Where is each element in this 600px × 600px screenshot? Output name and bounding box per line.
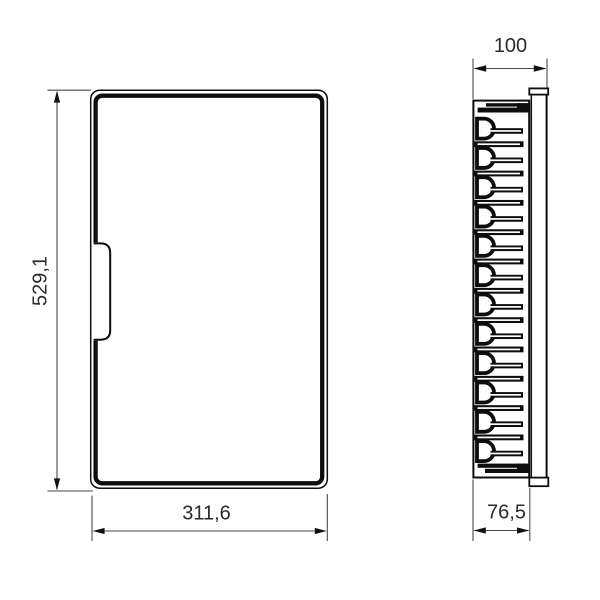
fin-separator-stripe (478, 173, 521, 175)
fin-stripe (491, 189, 522, 191)
fin-separator-stripe (478, 261, 521, 263)
fin-stripe (491, 218, 522, 220)
fin-stripe (491, 247, 522, 249)
dim-label-height: 529,1 (30, 256, 52, 306)
fin-stripe (491, 394, 522, 396)
fin-stripe (491, 365, 522, 367)
fin-stripe (491, 130, 522, 132)
arrowhead-left-icon (474, 65, 487, 71)
fin-stripe (491, 159, 522, 161)
fin-separator-stripe (478, 437, 521, 439)
arrowhead-right-icon (517, 527, 529, 533)
fin-separator-stripe (478, 319, 521, 321)
arrowhead-right-icon (315, 528, 327, 534)
fin-stripe (491, 335, 522, 337)
side-bottom-band (478, 464, 530, 473)
fin-separator-stripe (478, 143, 521, 145)
fin-separator-stripe (478, 407, 521, 409)
mount-plate (529, 88, 548, 486)
drawing-canvas: 529,1 311,6 100 76,5 (0, 0, 600, 600)
mount-plate-bottom-foot (529, 478, 548, 487)
fin-separator-stripe (478, 290, 521, 292)
dim-label-depth-total: 100 (494, 35, 527, 57)
side-view (473, 88, 548, 486)
dim-height: 529,1 (30, 90, 94, 491)
mount-plate-top-cap (529, 88, 548, 94)
front-outer-frame (91, 90, 328, 488)
bottom-band-joint (517, 464, 529, 473)
fin-separator-stripe (478, 349, 521, 351)
fin-separator-stripe (478, 378, 521, 380)
dim-depth-total: 100 (473, 35, 547, 99)
fin-stripe (491, 453, 522, 455)
fin-separator-stripe (478, 231, 521, 233)
fin-stripe (491, 306, 522, 308)
side-top-band (478, 103, 529, 112)
front-door-panel (96, 96, 323, 484)
dim-label-width: 311,6 (182, 503, 231, 525)
arrowhead-down-icon (54, 478, 60, 490)
front-view (91, 90, 328, 488)
fin-stack (474, 119, 523, 462)
technical-drawing: 529,1 311,6 100 76,5 (0, 0, 600, 600)
fin-separator-stripe (478, 202, 521, 204)
arrowhead-left-icon (474, 527, 486, 533)
dim-depth-body: 76,5 (473, 480, 530, 542)
arrowhead-left-icon (93, 528, 105, 534)
dim-width: 311,6 (92, 494, 327, 541)
fin-stripe (491, 277, 522, 279)
arrowhead-right-icon (534, 65, 547, 71)
top-band-joint (517, 103, 529, 112)
fin-stripe (491, 423, 522, 425)
dim-label-depth-body: 76,5 (487, 502, 526, 524)
door-edge-gap (93, 242, 99, 340)
arrowhead-up-icon (54, 91, 60, 103)
